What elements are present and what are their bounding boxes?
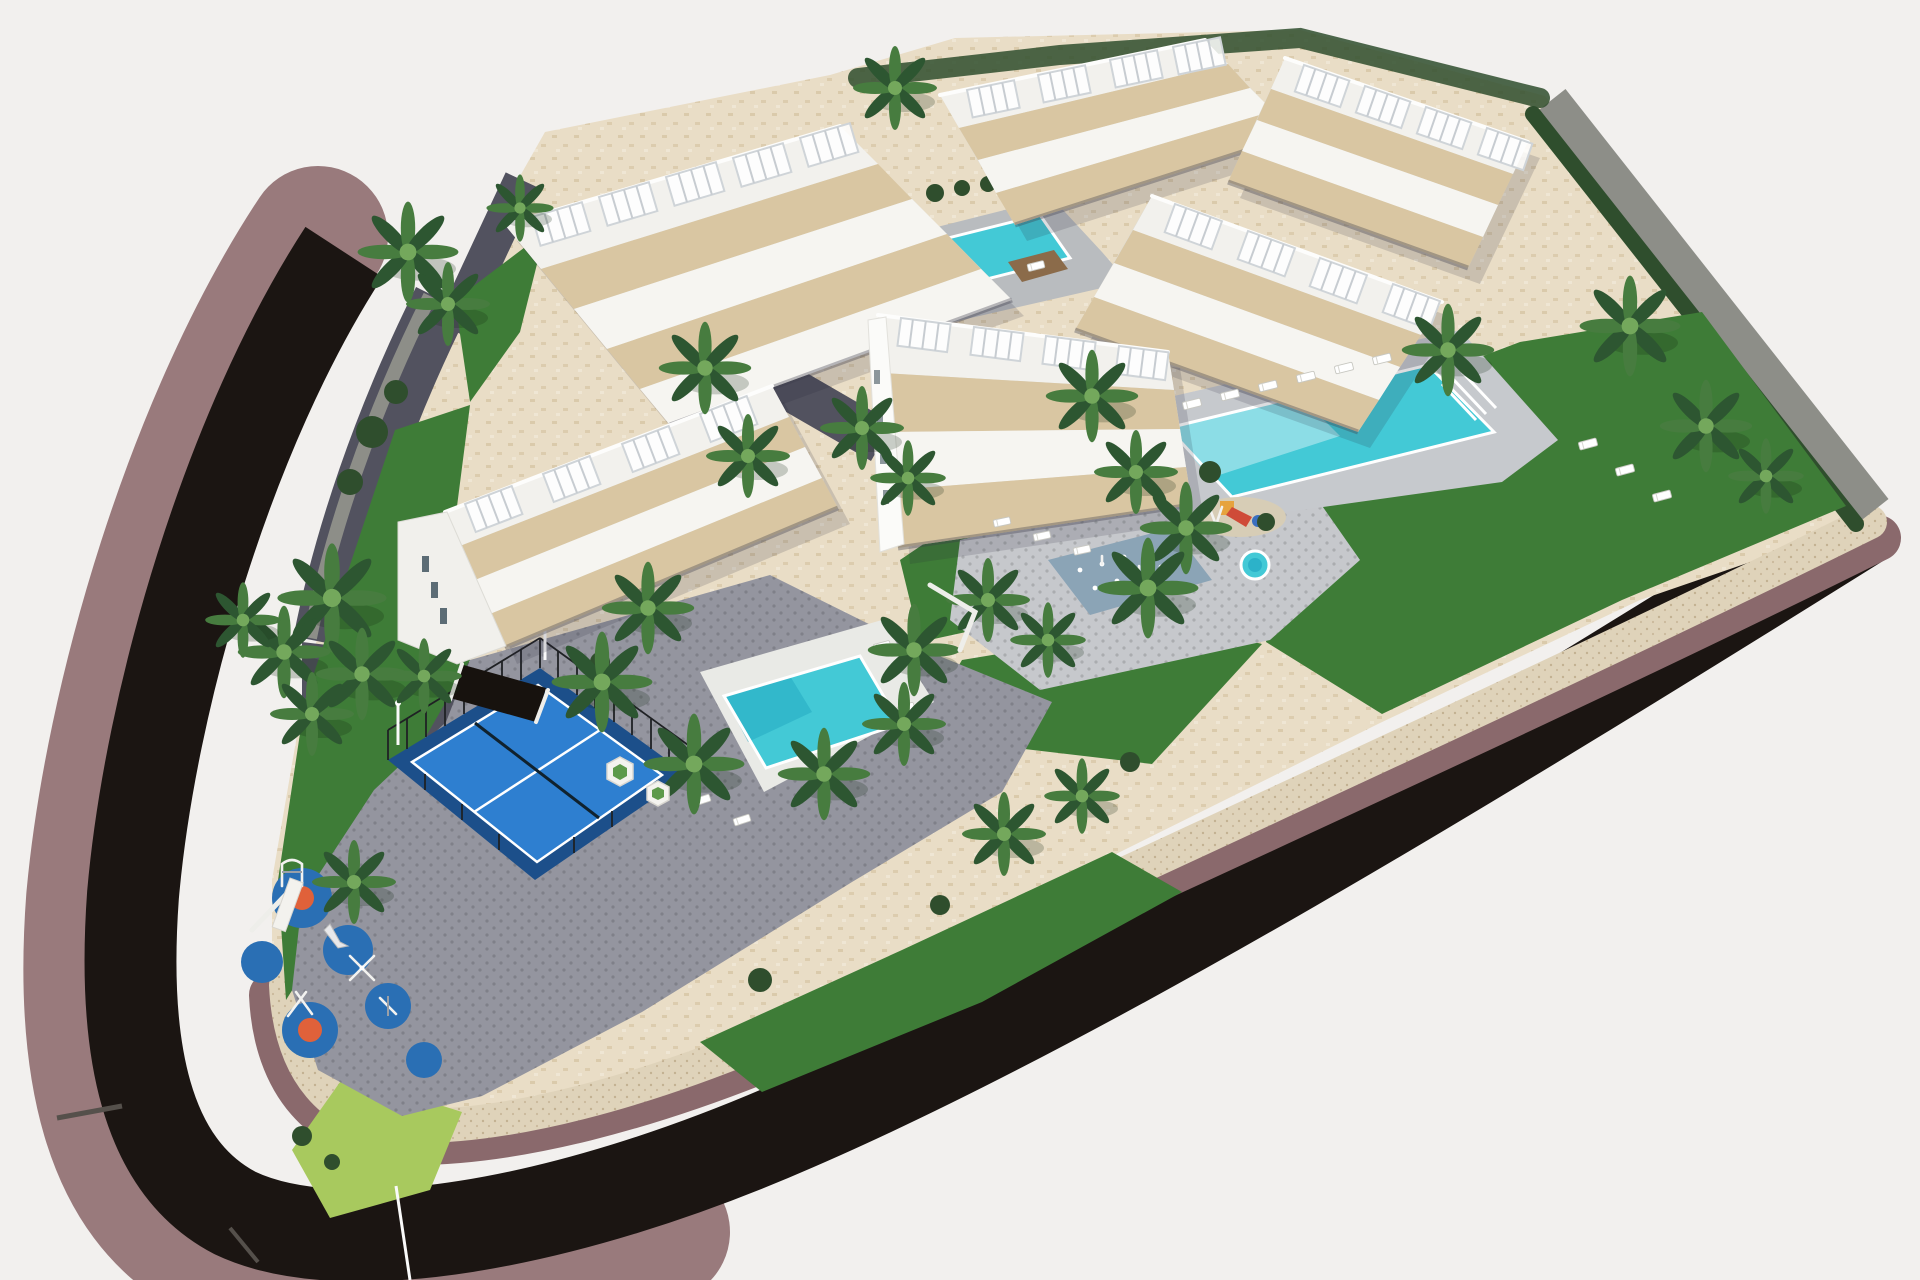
palm-tree (962, 792, 1046, 876)
palm-tree (868, 604, 960, 696)
palm-tree (312, 840, 396, 924)
palm-tree (1660, 380, 1752, 472)
palm-tree (1046, 350, 1138, 442)
kids-round-pool (1241, 551, 1269, 579)
palm-tree (1010, 602, 1086, 678)
palm-tree (486, 174, 553, 241)
palm-tree (778, 728, 870, 820)
play-pad (241, 941, 283, 983)
palm-tree (1402, 304, 1494, 396)
pad-orange-dot (298, 1018, 322, 1042)
palm-tree (406, 262, 490, 346)
aerial-render-canvas (0, 0, 1920, 1280)
palm-tree (1580, 276, 1681, 377)
palm-tree (602, 562, 694, 654)
palm-tree (862, 682, 946, 766)
site-plan-render: Aerial 3D render of a terraced coastal a… (0, 0, 1920, 1280)
palm-tree (270, 672, 354, 756)
play-pad (406, 1042, 442, 1078)
palm-tree (853, 46, 937, 130)
palm-tree (205, 582, 281, 658)
palm-tree (870, 440, 946, 516)
palm-tree (706, 414, 790, 498)
palm-tree (659, 322, 751, 414)
palm-tree (1728, 438, 1804, 514)
palm-tree (1098, 538, 1199, 639)
palm-tree (1044, 758, 1120, 834)
palm-tree (386, 638, 462, 714)
palm-tree (552, 632, 653, 733)
